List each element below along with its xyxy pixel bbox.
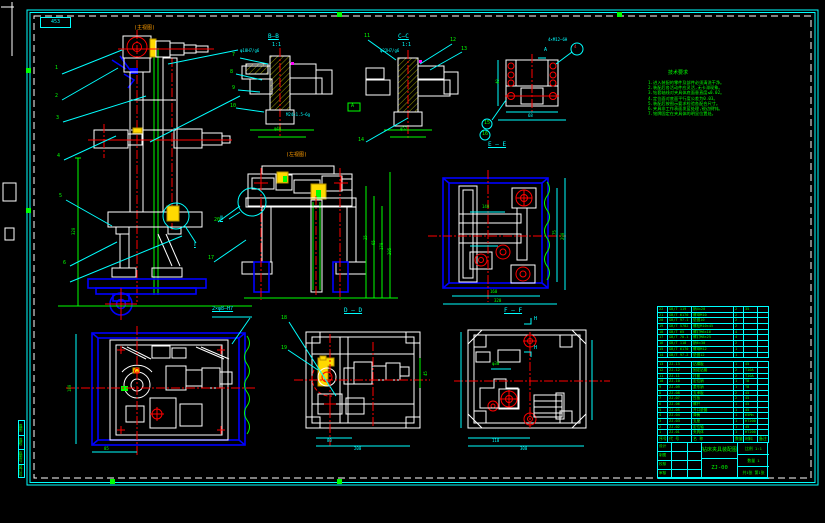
view-mid-elevation (214, 166, 398, 300)
dimension-label: φ40 (274, 127, 281, 131)
dimension-label: 25 (364, 235, 368, 240)
dimension-label: 205 (388, 248, 392, 255)
tb-right: 比例 1:1数量 1共1张 第1张 (738, 443, 769, 479)
label-bb-scale: 1:1 (272, 43, 281, 48)
balloon-number: 2 (55, 94, 58, 99)
balloon-number: 5 (59, 194, 62, 199)
balloon-number: 20 (214, 218, 220, 223)
balloon-number: 10 (230, 104, 236, 109)
notes-lines: 1.进入装配的零件及部件必须清洗干净。2.装配后各活动件应灵活,无卡滞现象。3.… (648, 80, 752, 116)
parts-cell: GB/T 97.2 (668, 353, 692, 359)
tb-right-cell: 比例 1:1 (738, 443, 769, 455)
callout-holes: 2×φ8—H7 (212, 307, 233, 312)
title-center: 钻床夹具装配图 ZJ-00 (702, 443, 738, 479)
edge-strip-cell: 描图 (18, 420, 25, 435)
label-datum: A (351, 104, 354, 109)
edge-strip-cell: 底图号 (18, 449, 25, 464)
dimension-label: φ18H7/g6 (240, 49, 259, 53)
parts-row: 13ZJ-13钻模板145 (658, 361, 769, 368)
balloon-number: 3 (56, 116, 59, 121)
dimension-label: 45 (424, 371, 428, 376)
balloon-number: 15 (484, 121, 490, 126)
balloon-number: 8 (230, 70, 233, 75)
balloon-number: 11 (364, 34, 370, 39)
label-detail-1: Ⅰ (194, 242, 196, 248)
dimension-label: 290 (561, 233, 565, 240)
label-cc-scale: 1:1 (402, 43, 411, 48)
parts-cell (758, 353, 769, 359)
dimension-label: 4 (574, 45, 576, 49)
label-flag-a: A (544, 48, 547, 53)
edge-strip-cell: 装订号 (18, 464, 25, 479)
balloon-number: 4 (57, 154, 60, 159)
parts-list: 22GB/T 119销4×2023521GB/T 6170螺母M10220GB/… (657, 306, 769, 443)
balloon-number: 12 (450, 38, 456, 43)
view-plan-bottom-left (66, 317, 256, 456)
dimension-label: M24×1.5—6g (286, 113, 310, 117)
edge-strip: 描图描校底图号装订号 (18, 420, 31, 478)
label-section-bb: B—B (268, 34, 279, 40)
balloon-number: 6 (63, 261, 66, 266)
label-h-top: H (534, 317, 537, 322)
balloon-number: 19 (281, 346, 287, 351)
balloon-number: 17 (208, 256, 214, 261)
view-section-dd (288, 322, 430, 446)
title-block: 设计制图校核审核 钻床夹具装配图 ZJ-00 比例 1:1数量 1共1张 第1张 (657, 442, 768, 478)
dimension-label: φ52 (400, 127, 407, 131)
dimension-label: 85 (104, 447, 109, 451)
dimension-label: 140 (482, 205, 489, 209)
dimension-label: 300 (520, 447, 527, 451)
dimension-label: 68 (528, 114, 533, 118)
tb-right-cell: 共1张 第1张 (738, 467, 769, 479)
sign-row: 设计 (658, 443, 702, 452)
balloon-number: 18 (281, 316, 287, 321)
label-main-view: (主视图) (134, 26, 155, 31)
parts-cell: 垫圈12 (692, 353, 734, 359)
dimension-label: 40 (496, 79, 500, 84)
note-line: 7.铭牌固定在夹具体的明显位置处。 (648, 111, 752, 116)
dimension-label: 320 (72, 228, 76, 235)
label-section-cc: C—C (398, 34, 409, 40)
edge-strip-cell: 描校 (18, 435, 25, 450)
dimension-label: 180 (68, 385, 72, 392)
view-drill-plate (480, 43, 583, 140)
parts-cell: 1 (734, 353, 744, 359)
balloon-number: 1 (55, 66, 58, 71)
parts-row: 14GB/T 97.2垫圈121 (658, 353, 769, 359)
dimension-label: 160 (490, 290, 497, 294)
label-detail-2: Ⅱ (220, 216, 223, 222)
dimension-label: 75 (553, 230, 557, 235)
dimension-label: 4×M12—6H (548, 38, 567, 42)
balloon-number: 9 (232, 86, 235, 91)
parts-rows: 22GB/T 119销4×2023521GB/T 6170螺母M10220GB/… (658, 307, 769, 436)
dimension-label: 80 (327, 439, 332, 443)
sign-row: 校核 (658, 461, 702, 470)
balloon-number: 13 (461, 47, 467, 52)
label-section-ee: E — E (488, 142, 506, 148)
view-section-ee (428, 170, 566, 304)
label-h-bot: H (534, 346, 537, 351)
label-side-view: (左视图) (286, 153, 307, 158)
dimension-label: 320 (494, 299, 501, 303)
view-main-elevation (58, 30, 252, 320)
tb-right-cell: 数量 1 (738, 455, 769, 467)
parts-cell: 14 (658, 353, 668, 359)
balloon-number: 16 (482, 132, 488, 137)
corner-number-box: 453 (40, 17, 71, 28)
dimension-label: 65 (372, 240, 376, 245)
dimension-label: 200 (354, 447, 361, 451)
parts-cell (744, 353, 758, 359)
drawing-title: 钻床夹具装配图 (702, 443, 738, 459)
cad-sheet: 453 (主视图) (左视图) B—B 1:1 C—C 1:1 E — E D … (0, 0, 825, 523)
sign-grid: 设计制图校核审核 (658, 443, 702, 479)
drawing-number: ZJ-00 (702, 459, 738, 479)
balloon-number: 7 (232, 53, 235, 58)
label-section-dd: D — D (344, 308, 362, 314)
dimension-label: 170 (380, 243, 384, 250)
sign-row: 制图 (658, 452, 702, 461)
label-section-ff: F — F (504, 308, 522, 314)
dimension-label: 110 (492, 439, 499, 443)
notes-title: 技术要求 (668, 71, 688, 76)
balloon-number: 14 (358, 138, 364, 143)
sign-row: 审核 (658, 470, 702, 479)
dimension-label: φ30 (492, 362, 499, 366)
view-section-ff (454, 318, 610, 446)
dimension-label: φ22H7/g6 (380, 49, 399, 53)
view-section-bb (236, 48, 332, 137)
